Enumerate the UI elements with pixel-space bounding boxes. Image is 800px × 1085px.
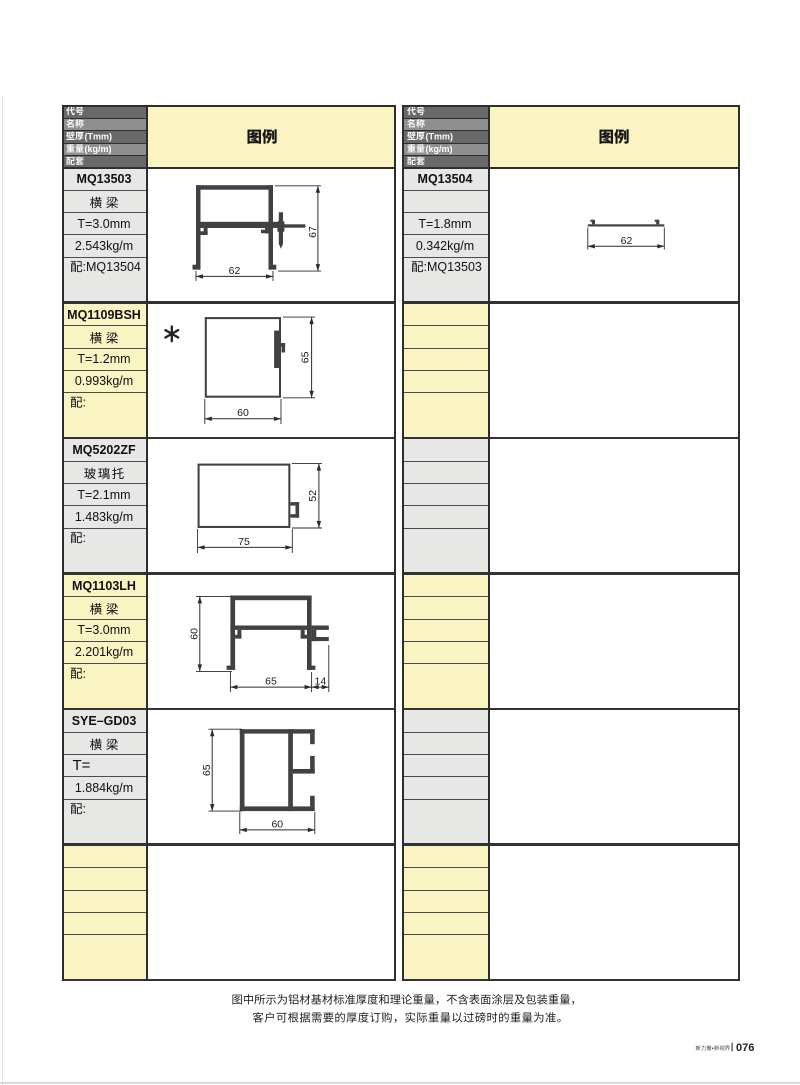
svg-text:65: 65 bbox=[201, 764, 213, 776]
svg-text:076: 076 bbox=[736, 1042, 754, 1054]
svg-text::: : bbox=[83, 531, 86, 545]
svg-text:(Tmm): (Tmm) bbox=[85, 131, 113, 141]
svg-text:60: 60 bbox=[188, 628, 200, 640]
svg-text:75: 75 bbox=[238, 536, 250, 548]
svg-text:(kg/m): (kg/m) bbox=[85, 144, 112, 154]
svg-text:65: 65 bbox=[299, 351, 311, 363]
svg-text:65: 65 bbox=[265, 676, 277, 688]
svg-text::: : bbox=[83, 802, 86, 816]
svg-text:67: 67 bbox=[307, 226, 319, 238]
svg-text:14: 14 bbox=[315, 676, 327, 688]
svg-text:60: 60 bbox=[237, 407, 249, 419]
svg-text:(Tmm): (Tmm) bbox=[426, 131, 454, 141]
svg-text:60: 60 bbox=[271, 818, 283, 830]
svg-text::MQ13504: :MQ13504 bbox=[83, 260, 141, 274]
svg-text:(kg/m): (kg/m) bbox=[426, 144, 453, 154]
svg-text::MQ13503: :MQ13503 bbox=[424, 260, 482, 274]
svg-text:62: 62 bbox=[621, 235, 633, 247]
svg-text:62: 62 bbox=[229, 265, 241, 277]
svg-text::: : bbox=[83, 667, 86, 681]
svg-text::: : bbox=[83, 396, 86, 410]
svg-text:52: 52 bbox=[307, 490, 319, 502]
